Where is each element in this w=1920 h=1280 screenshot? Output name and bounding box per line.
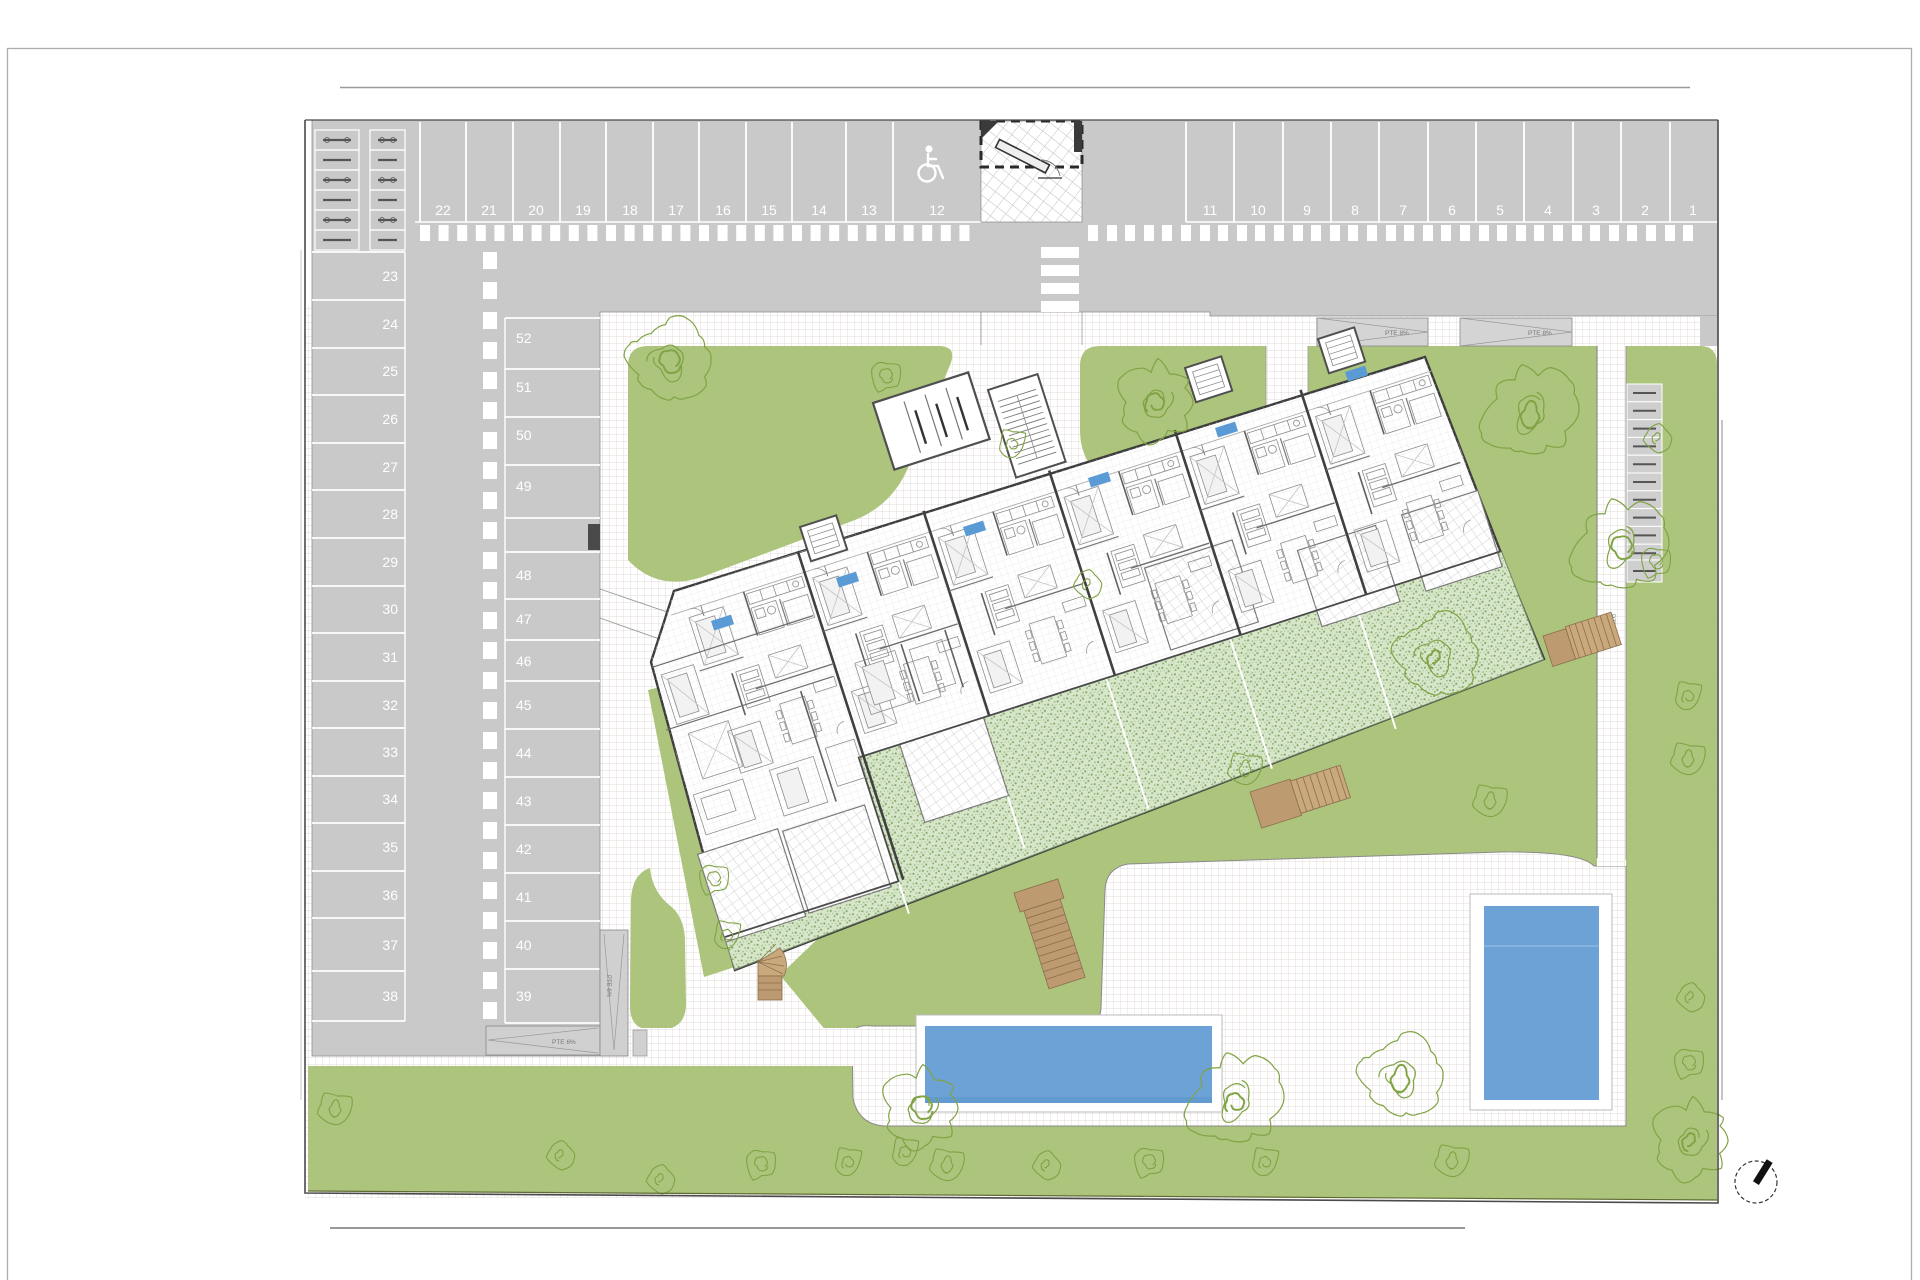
svg-text:17: 17 bbox=[668, 202, 684, 218]
svg-text:36: 36 bbox=[382, 887, 398, 903]
svg-text:34: 34 bbox=[382, 791, 398, 807]
svg-text:35: 35 bbox=[382, 839, 398, 855]
svg-text:PTE 6%: PTE 6% bbox=[552, 1039, 576, 1046]
svg-text:19: 19 bbox=[575, 202, 591, 218]
svg-text:50: 50 bbox=[516, 427, 532, 443]
svg-text:42: 42 bbox=[516, 841, 532, 857]
svg-text:45: 45 bbox=[516, 697, 532, 713]
svg-text:40: 40 bbox=[516, 937, 532, 953]
svg-text:32: 32 bbox=[382, 697, 398, 713]
svg-text:48: 48 bbox=[516, 567, 532, 583]
svg-text:16: 16 bbox=[715, 202, 731, 218]
svg-text:26: 26 bbox=[382, 411, 398, 427]
svg-text:PTE 6%: PTE 6% bbox=[605, 975, 611, 998]
svg-text:7: 7 bbox=[1399, 202, 1407, 218]
svg-text:10: 10 bbox=[1250, 202, 1266, 218]
svg-text:8: 8 bbox=[1351, 202, 1359, 218]
svg-text:39: 39 bbox=[516, 988, 532, 1004]
svg-text:37: 37 bbox=[382, 937, 398, 953]
svg-text:5: 5 bbox=[1496, 202, 1504, 218]
svg-text:4: 4 bbox=[1544, 202, 1552, 218]
svg-text:43: 43 bbox=[516, 793, 532, 809]
svg-text:11: 11 bbox=[1203, 202, 1218, 218]
svg-text:25: 25 bbox=[382, 363, 398, 379]
svg-text:PTE 8%: PTE 8% bbox=[1385, 330, 1409, 337]
svg-text:27: 27 bbox=[382, 459, 398, 475]
svg-text:9: 9 bbox=[1303, 202, 1311, 218]
svg-text:13: 13 bbox=[861, 202, 877, 218]
svg-text:30: 30 bbox=[382, 601, 398, 617]
svg-text:2: 2 bbox=[1641, 202, 1649, 218]
svg-text:44: 44 bbox=[516, 745, 532, 761]
svg-text:29: 29 bbox=[382, 554, 398, 570]
svg-text:12: 12 bbox=[929, 202, 945, 218]
svg-text:47: 47 bbox=[516, 611, 532, 627]
svg-text:33: 33 bbox=[382, 744, 398, 760]
svg-text:21: 21 bbox=[481, 202, 497, 218]
svg-text:PTE 8%: PTE 8% bbox=[1528, 330, 1552, 337]
svg-text:20: 20 bbox=[528, 202, 544, 218]
svg-text:41: 41 bbox=[516, 889, 532, 905]
svg-text:15: 15 bbox=[761, 202, 777, 218]
svg-text:51: 51 bbox=[516, 379, 532, 395]
svg-text:6: 6 bbox=[1448, 202, 1456, 218]
svg-text:22: 22 bbox=[435, 202, 451, 218]
svg-text:46: 46 bbox=[516, 653, 532, 669]
svg-text:28: 28 bbox=[382, 506, 398, 522]
svg-text:24: 24 bbox=[382, 316, 398, 332]
svg-text:18: 18 bbox=[622, 202, 638, 218]
svg-text:14: 14 bbox=[811, 202, 827, 218]
svg-text:3: 3 bbox=[1592, 202, 1600, 218]
svg-text:52: 52 bbox=[516, 330, 532, 346]
svg-text:49: 49 bbox=[516, 478, 532, 494]
svg-text:23: 23 bbox=[382, 268, 398, 284]
svg-text:1: 1 bbox=[1689, 202, 1697, 218]
svg-text:38: 38 bbox=[382, 988, 398, 1004]
svg-text:31: 31 bbox=[382, 649, 398, 665]
